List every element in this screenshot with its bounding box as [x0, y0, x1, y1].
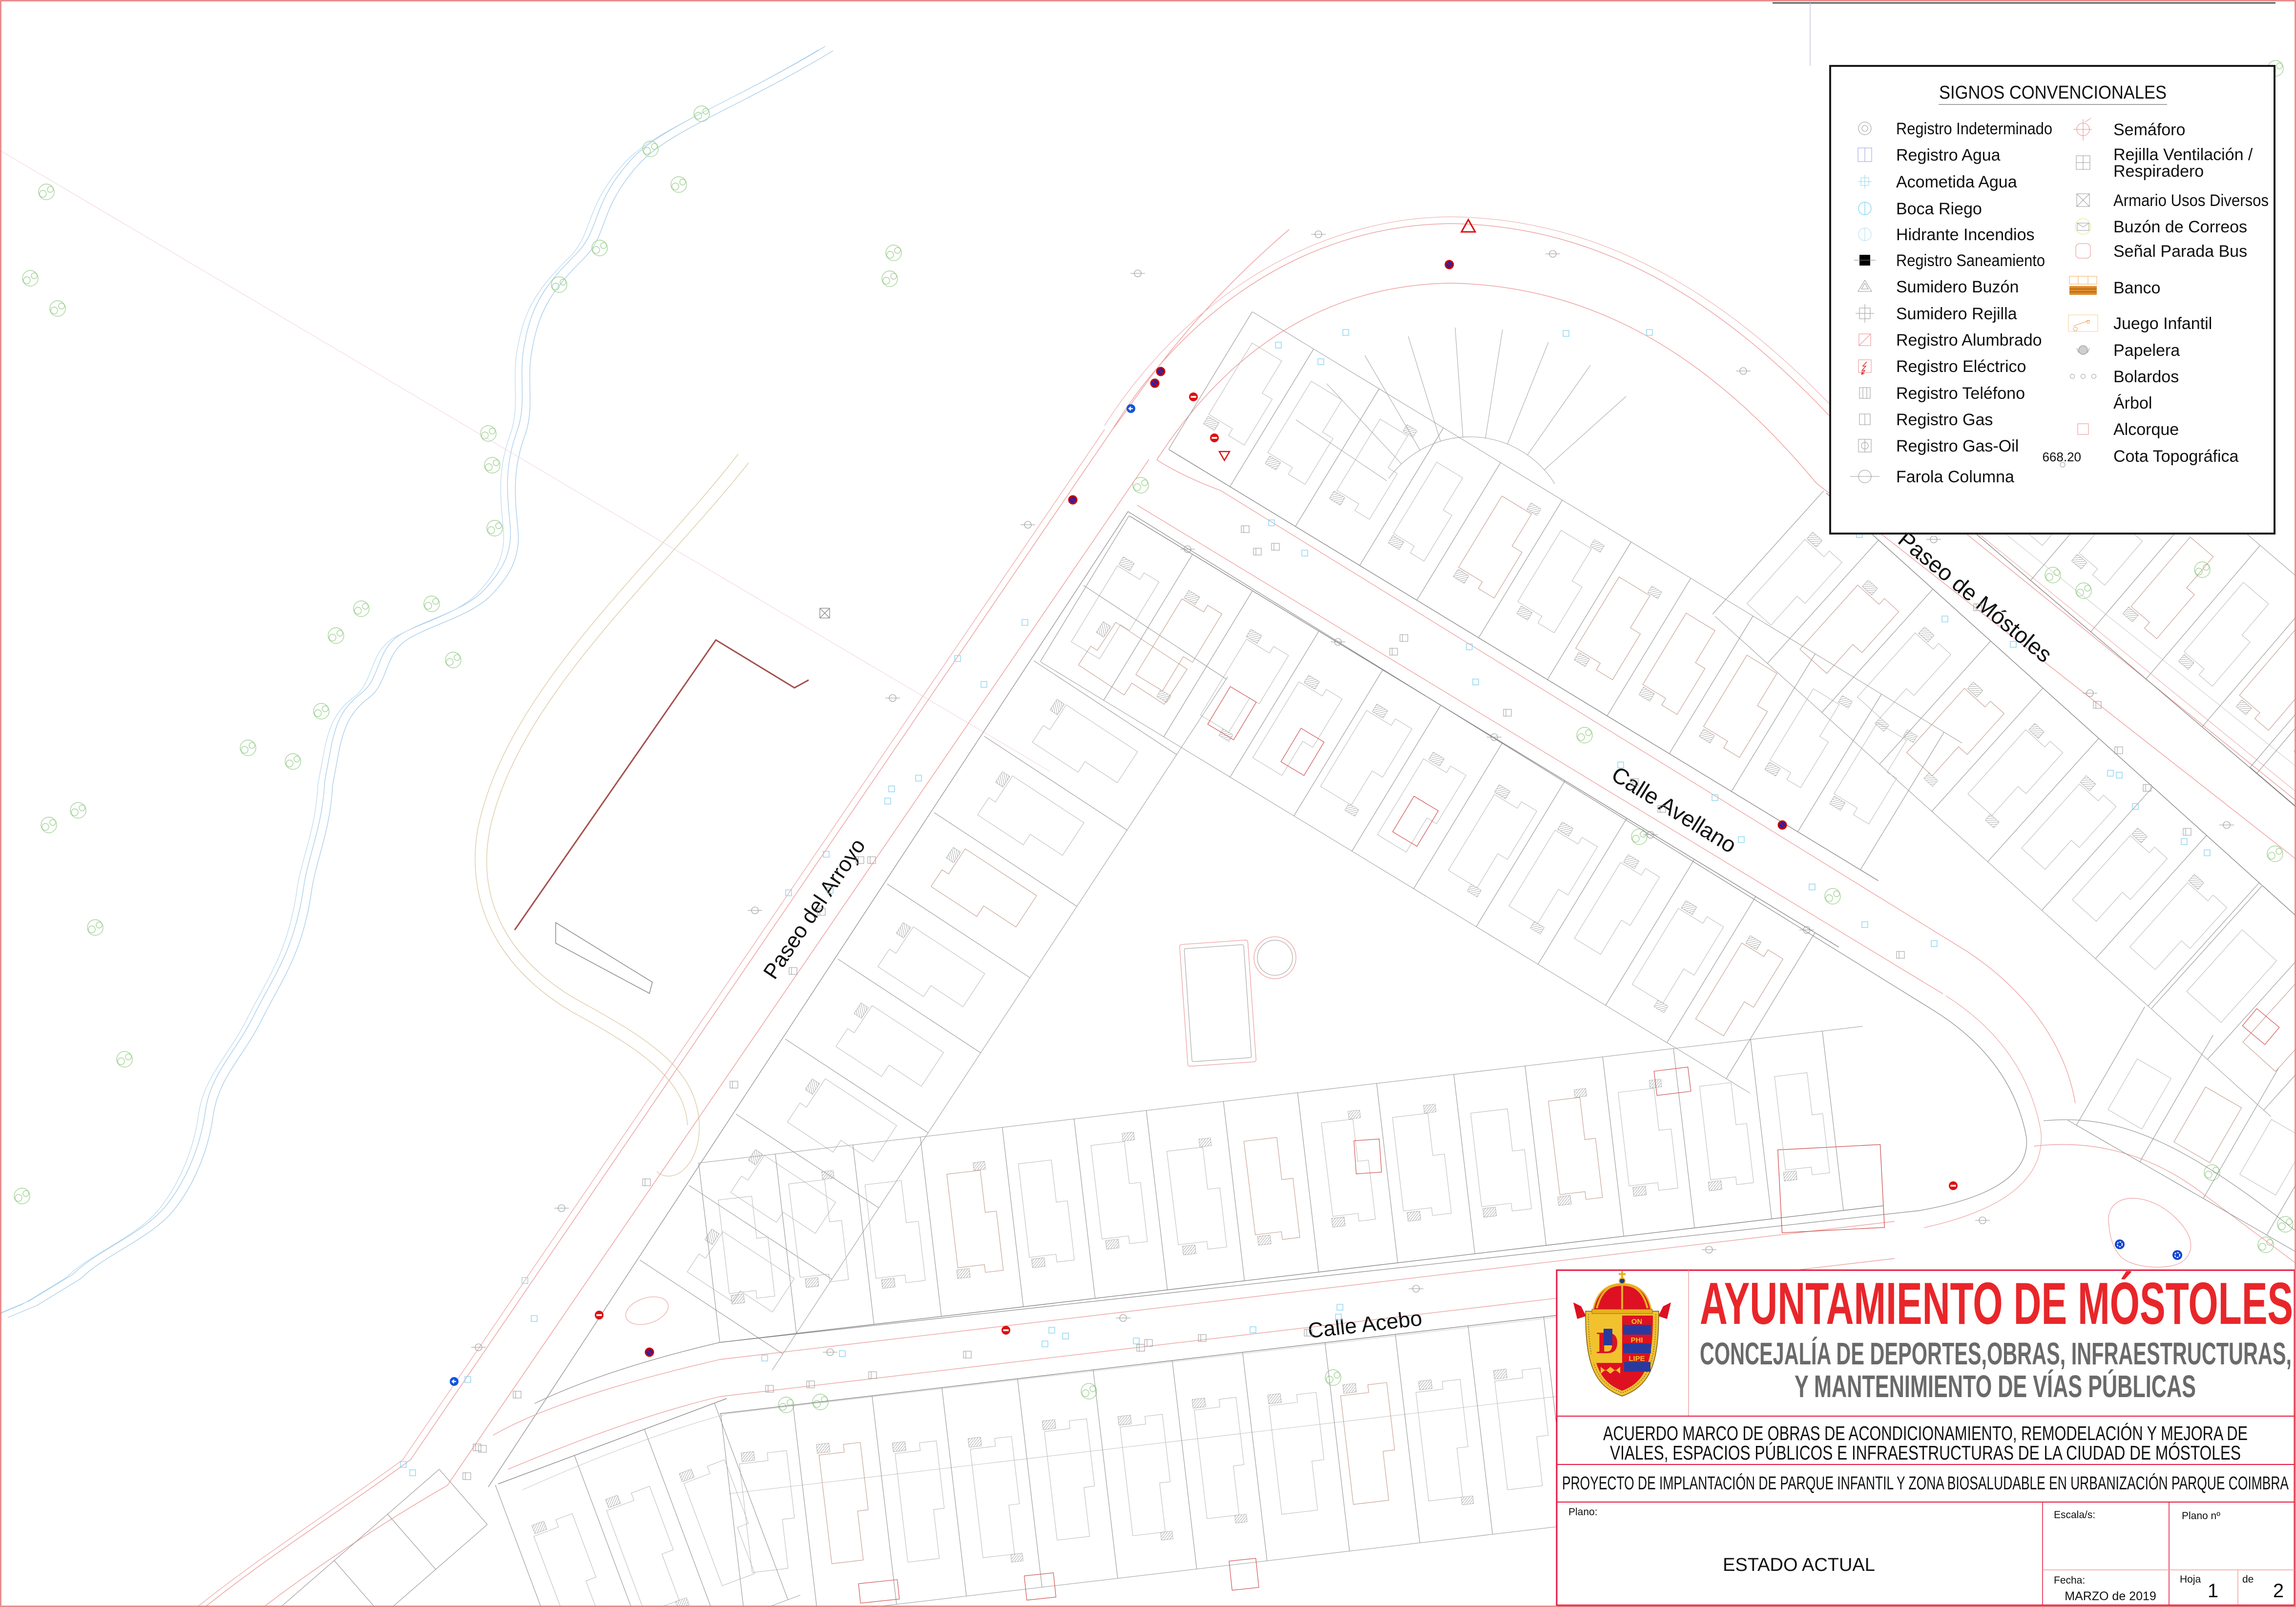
- svg-text:Registro Agua: Registro Agua: [1896, 146, 2001, 165]
- svg-text:Registro Eléctrico: Registro Eléctrico: [1896, 357, 2026, 376]
- svg-text:Hidrante Incendios: Hidrante Incendios: [1896, 226, 2035, 244]
- svg-text:Escala/s:: Escala/s:: [2054, 1509, 2095, 1521]
- svg-text:Banco: Banco: [2113, 279, 2160, 297]
- svg-text:Registro Gas-Oil: Registro Gas-Oil: [1896, 437, 2019, 455]
- svg-text:VIALES, ESPACIOS PÚBLICOS E IN: VIALES, ESPACIOS PÚBLICOS E INFRAESTRUCT…: [1610, 1442, 2241, 1464]
- svg-text:PHI: PHI: [1630, 1336, 1643, 1344]
- svg-text:Armario Usos Diversos: Armario Usos Diversos: [2113, 191, 2269, 210]
- svg-text:Hoja: Hoja: [2180, 1574, 2201, 1585]
- svg-text:Plano:: Plano:: [1568, 1506, 1598, 1518]
- svg-text:Registro Teléfono: Registro Teléfono: [1896, 384, 2025, 403]
- svg-text:Rejilla Ventilación /: Rejilla Ventilación /: [2113, 145, 2253, 164]
- svg-text:Papelera: Papelera: [2113, 341, 2180, 360]
- svg-text:ESTADO ACTUAL: ESTADO ACTUAL: [1723, 1555, 1875, 1575]
- svg-text:Registro Indeterminado: Registro Indeterminado: [1896, 120, 2052, 138]
- svg-text:Árbol: Árbol: [2113, 394, 2152, 412]
- svg-text:de: de: [2242, 1574, 2254, 1585]
- svg-text:LIPE: LIPE: [1628, 1355, 1645, 1363]
- svg-text:Buzón de Correos: Buzón de Correos: [2113, 218, 2247, 236]
- svg-text:Registro Gas: Registro Gas: [1896, 411, 1993, 429]
- svg-text:Farola Columna: Farola Columna: [1896, 468, 2014, 486]
- svg-text:Semáforo: Semáforo: [2113, 121, 2185, 139]
- svg-text:Sumidero Buzón: Sumidero Buzón: [1896, 278, 2019, 296]
- svg-text:MARZO de 2019: MARZO de 2019: [2065, 1589, 2156, 1603]
- svg-text:2: 2: [2273, 1580, 2284, 1602]
- svg-text:AYUNTAMIENTO DE MÓSTOLES: AYUNTAMIENTO DE MÓSTOLES: [1700, 1270, 2293, 1337]
- svg-text:SIGNOS CONVENCIONALES: SIGNOS CONVENCIONALES: [1939, 82, 2167, 103]
- svg-text:Fecha:: Fecha:: [2054, 1575, 2085, 1586]
- svg-text:CONCEJALÍA DE DEPORTES,OBRAS,: CONCEJALÍA DE DEPORTES,OBRAS, INFRAESTRU…: [1700, 1336, 2292, 1371]
- svg-text:Acometida Agua: Acometida Agua: [1896, 173, 2017, 191]
- svg-text:668.20: 668.20: [2042, 450, 2081, 464]
- svg-text:1: 1: [2208, 1580, 2218, 1602]
- svg-text:Señal Parada Bus: Señal Parada Bus: [2113, 242, 2247, 261]
- svg-text:ON: ON: [1631, 1318, 1643, 1326]
- svg-text:Boca Riego: Boca Riego: [1896, 200, 1982, 218]
- svg-text:Registro Alumbrado: Registro Alumbrado: [1896, 331, 2042, 350]
- svg-text:Plano nº: Plano nº: [2182, 1510, 2220, 1522]
- svg-text:Bolardos: Bolardos: [2113, 368, 2179, 386]
- svg-text:Registro Saneamiento: Registro Saneamiento: [1896, 251, 2045, 270]
- svg-text:Cota Topográfica: Cota Topográfica: [2113, 447, 2239, 466]
- svg-text:Respiradero: Respiradero: [2113, 162, 2204, 181]
- svg-text:Sumidero Rejilla: Sumidero Rejilla: [1896, 305, 2017, 323]
- svg-text:Juego Infantil: Juego Infantil: [2113, 314, 2212, 333]
- svg-text:Alcorque: Alcorque: [2113, 420, 2179, 439]
- svg-text:PROYECTO DE IMPLANTACIÓN DE PA: PROYECTO DE IMPLANTACIÓN DE PARQUE INFAN…: [1562, 1473, 2289, 1494]
- svg-text:Y MANTENIMIENTO DE VÍAS PÚBLIC: Y MANTENIMIENTO DE VÍAS PÚBLICAS: [1795, 1369, 2196, 1404]
